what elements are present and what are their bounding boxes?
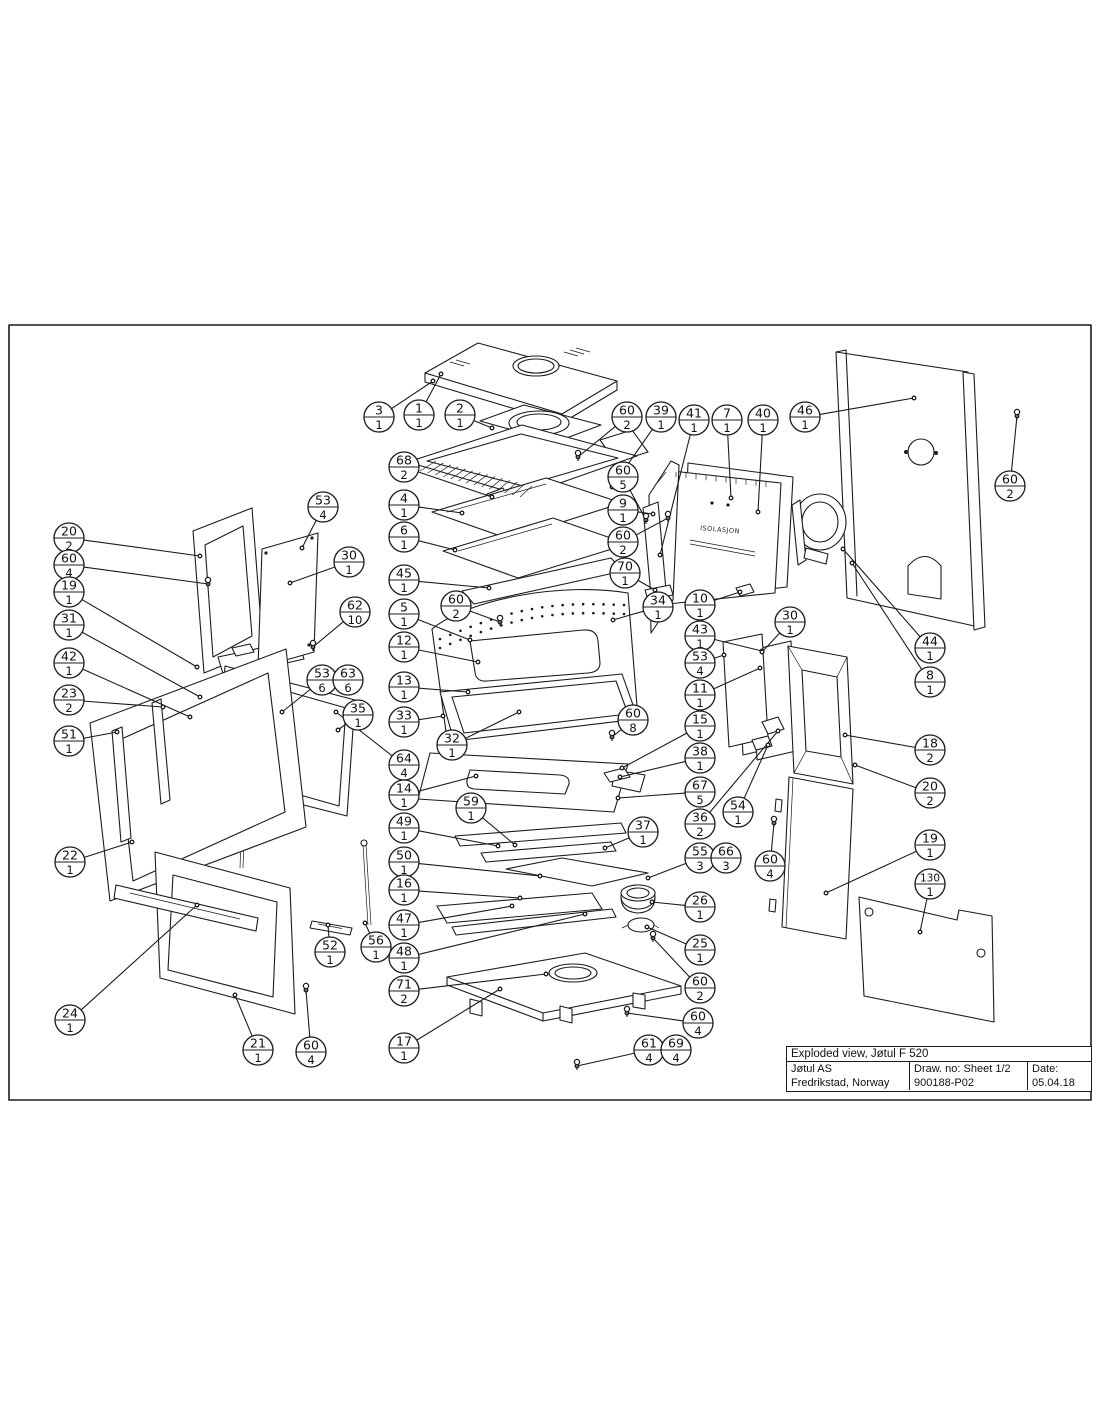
callout-quantity: 1 <box>657 418 664 432</box>
callout-quantity: 4 <box>307 1053 314 1067</box>
callout-quantity: 1 <box>926 683 933 697</box>
callout-part-number: 40 <box>755 406 771 421</box>
callout-quantity: 1 <box>65 664 72 678</box>
callout-part-number: 59 <box>463 794 479 809</box>
callout-part-number: 25 <box>692 936 708 951</box>
callout-quantity: 1 <box>65 593 72 607</box>
callout-part-number: 16 <box>396 876 412 891</box>
callout-quantity: 2 <box>400 992 407 1006</box>
callout-balloon-53: 534 <box>300 492 338 550</box>
callout-quantity: 2 <box>696 989 703 1003</box>
callout-quantity: 1 <box>926 649 933 663</box>
callout-quantity: 1 <box>400 1049 407 1063</box>
callout-quantity: 1 <box>448 746 455 760</box>
callout-part-number: 33 <box>396 708 412 723</box>
callout-part-number: 42 <box>61 649 77 664</box>
callout-quantity: 1 <box>65 626 72 640</box>
callout-part-number: 45 <box>396 566 412 581</box>
callout-part-number: 6 <box>400 523 408 538</box>
callout-part-number: 67 <box>692 778 708 793</box>
company-name: Jøtul AS <box>787 1062 909 1076</box>
callout-part-number: 3 <box>375 403 383 418</box>
callout-quantity: 1 <box>400 959 407 973</box>
callout-balloon-18: 182 <box>843 733 945 765</box>
callout-part-number: 50 <box>396 848 412 863</box>
callout-quantity: 2 <box>696 825 703 839</box>
callout-part-number: 5 <box>400 600 408 615</box>
callout-quantity: 1 <box>375 418 382 432</box>
callout-quantity: 1 <box>696 759 703 773</box>
callout-part-number: 41 <box>686 406 702 421</box>
callout-part-number: 60 <box>615 528 631 543</box>
callout-quantity: 1 <box>66 863 73 877</box>
drawing-number: 900188-P02 <box>909 1076 1027 1090</box>
callout-quantity: 1 <box>372 948 379 962</box>
callout-part-number: 60 <box>448 592 464 607</box>
callout-quantity: 5 <box>696 793 703 807</box>
callout-quantity: 1 <box>690 421 697 435</box>
callout-quantity: 4 <box>400 766 407 780</box>
callout-part-number: 68 <box>396 453 412 468</box>
callout-part-number: 71 <box>396 977 412 992</box>
callout-part-number: 2 <box>456 401 464 416</box>
callout-part-number: 30 <box>341 548 357 563</box>
callout-part-number: 51 <box>61 727 77 742</box>
callout-part-number: 24 <box>62 1006 78 1021</box>
title-block: Exploded view, Jøtul F 520 Jøtul AS Draw… <box>786 1046 1092 1092</box>
callout-quantity: 8 <box>629 721 636 735</box>
callout-quantity: 1 <box>801 418 808 432</box>
callout-quantity: 1 <box>619 511 626 525</box>
callout-balloon-25: 251 <box>645 925 715 965</box>
callout-part-number: 60 <box>615 463 631 478</box>
callout-part-number: 48 <box>396 944 412 959</box>
callout-quantity: 1 <box>621 574 628 588</box>
callout-quantity: 1 <box>400 538 407 552</box>
callout-quantity: 2 <box>65 701 72 715</box>
callout-quantity: 2 <box>623 418 630 432</box>
callout-quantity: 4 <box>672 1051 679 1065</box>
callout-part-number: 10 <box>692 591 708 606</box>
callout-quantity: 1 <box>345 563 352 577</box>
callout-balloon-38: 381 <box>618 743 715 779</box>
callout-quantity: 4 <box>694 1024 701 1038</box>
callout-part-number: 20 <box>61 524 77 539</box>
callout-quantity: 2 <box>926 794 933 808</box>
callout-part-number: 38 <box>692 744 708 759</box>
callout-part-number: 39 <box>653 403 669 418</box>
callout-quantity: 1 <box>354 716 361 730</box>
callout-part-number: 60 <box>690 1009 706 1024</box>
callout-quantity: 1 <box>400 926 407 940</box>
callout-balloon-60: 604 <box>296 983 326 1067</box>
callout-quantity: 1 <box>759 421 766 435</box>
callout-balloon-53: 534 <box>685 648 726 678</box>
callout-quantity: 1 <box>696 951 703 965</box>
callout-part-number: 19 <box>922 831 938 846</box>
company-address: Fredrikstad, Norway <box>787 1076 909 1090</box>
callout-quantity: 1 <box>723 421 730 435</box>
callout-part-number: 60 <box>762 852 778 867</box>
callout-part-number: 14 <box>396 781 412 796</box>
callout-quantity: 1 <box>467 809 474 823</box>
callout-balloon-2: 21 <box>445 400 494 430</box>
callout-part-number: 53 <box>314 666 330 681</box>
callout-part-number: 15 <box>692 712 708 727</box>
callout-quantity: 1 <box>400 648 407 662</box>
callout-part-number: 60 <box>1002 472 1018 487</box>
callout-part-number: 60 <box>692 974 708 989</box>
callout-quantity: 1 <box>400 891 407 905</box>
callout-part-number: 9 <box>619 496 627 511</box>
callout-part-number: 54 <box>730 798 746 813</box>
callout-balloon-54: 541 <box>723 743 770 827</box>
callout-part-number: 70 <box>617 559 633 574</box>
left-glass-panel-shape <box>258 533 318 668</box>
callout-balloon-69: 694 <box>661 1035 691 1065</box>
callout-part-number: 43 <box>692 622 708 637</box>
callout-part-number: 19 <box>61 578 77 593</box>
callout-quantity: 1 <box>400 723 407 737</box>
callout-quantity: 1 <box>734 813 741 827</box>
callout-quantity: 1 <box>400 615 407 629</box>
callout-quantity: 2 <box>1006 487 1013 501</box>
callout-part-number: 52 <box>322 938 338 953</box>
base-plate-shape <box>447 953 681 1023</box>
callout-part-number: 130 <box>920 873 940 885</box>
callout-quantity: 1 <box>786 623 793 637</box>
callout-part-number: 31 <box>61 611 77 626</box>
callout-quantity: 1 <box>456 416 463 430</box>
callout-balloon-60: 604 <box>755 816 785 881</box>
callout-part-number: 23 <box>61 686 77 701</box>
callout-part-number: 60 <box>61 551 77 566</box>
callout-quantity: 1 <box>400 688 407 702</box>
side-frame-shape <box>788 646 853 784</box>
callout-balloon-60: 604 <box>624 1006 713 1038</box>
callout-balloon-26: 261 <box>650 892 715 922</box>
callout-part-number: 44 <box>922 634 938 649</box>
callout-part-number: 61 <box>641 1036 657 1051</box>
callout-part-number: 63 <box>340 666 356 681</box>
bottom-shield-shape <box>859 897 994 1022</box>
callout-part-number: 11 <box>692 681 708 696</box>
callout-quantity: 3 <box>696 859 703 873</box>
callout-part-number: 49 <box>396 814 412 829</box>
callout-quantity: 1 <box>254 1051 261 1065</box>
drawing-date: 05.04.18 <box>1027 1076 1091 1090</box>
callout-quantity: 1 <box>696 606 703 620</box>
callout-part-number: 36 <box>692 810 708 825</box>
flue-outlet-shapes <box>621 885 659 932</box>
callout-quantity: 1 <box>696 696 703 710</box>
drawing-title: Exploded view, Jøtul F 520 <box>787 1047 1091 1062</box>
callout-part-number: 20 <box>922 779 938 794</box>
callout-part-number: 13 <box>396 673 412 688</box>
callout-quantity: 1 <box>639 833 646 847</box>
callout-quantity: 2 <box>619 543 626 557</box>
drawing-page: ISOLASJON <box>0 0 1100 1422</box>
callout-quantity: 1 <box>654 608 661 622</box>
callout-quantity: 2 <box>400 468 407 482</box>
callout-part-number: 55 <box>692 844 708 859</box>
callout-part-number: 8 <box>926 668 934 683</box>
callout-quantity: 1 <box>696 727 703 741</box>
callout-balloon-60: 602 <box>995 409 1025 501</box>
callout-part-number: 66 <box>718 844 734 859</box>
callout-part-number: 4 <box>400 491 408 506</box>
callout-part-number: 22 <box>62 848 78 863</box>
callout-part-number: 69 <box>668 1036 684 1051</box>
callout-part-number: 60 <box>619 403 635 418</box>
callout-part-number: 53 <box>692 649 708 664</box>
callout-part-number: 26 <box>692 893 708 908</box>
callout-quantity: 3 <box>722 859 729 873</box>
callout-quantity: 1 <box>415 416 422 430</box>
callout-balloon-66: 663 <box>711 843 741 873</box>
callout-quantity: 2 <box>926 751 933 765</box>
exploded-diagram: ISOLASJON <box>0 0 1100 1422</box>
callout-part-number: 32 <box>444 731 460 746</box>
callout-quantity: 5 <box>619 478 626 492</box>
callout-quantity: 1 <box>400 829 407 843</box>
callout-part-number: 35 <box>350 701 366 716</box>
callout-part-number: 60 <box>625 706 641 721</box>
callout-part-number: 30 <box>782 608 798 623</box>
callout-quantity: 4 <box>319 508 326 522</box>
callout-quantity: 10 <box>348 613 363 627</box>
callout-part-number: 56 <box>368 933 384 948</box>
callout-part-number: 7 <box>723 406 731 421</box>
callout-quantity: 1 <box>326 953 333 967</box>
callout-quantity: 4 <box>645 1051 652 1065</box>
callout-quantity: 1 <box>926 846 933 860</box>
callout-part-number: 53 <box>315 493 331 508</box>
callout-balloon-55: 553 <box>646 843 715 880</box>
callout-quantity: 4 <box>696 664 703 678</box>
callout-quantity: 1 <box>400 796 407 810</box>
draw-no-label: Draw. no: Sheet 1/2 <box>909 1062 1027 1076</box>
callout-quantity: 1 <box>400 506 407 520</box>
callout-balloon-63: 636 <box>333 665 363 695</box>
callout-part-number: 18 <box>922 736 938 751</box>
callout-balloon-1: 11 <box>404 372 443 430</box>
callout-quantity: 4 <box>766 867 773 881</box>
callout-part-number: 34 <box>650 593 666 608</box>
callout-balloon-6: 61 <box>389 522 457 552</box>
callout-balloon-61: 614 <box>574 1035 664 1070</box>
callout-quantity: 1 <box>66 1021 73 1035</box>
callout-quantity: 1 <box>926 885 933 899</box>
callout-balloon-33: 331 <box>389 707 445 737</box>
callout-quantity: 6 <box>344 681 351 695</box>
callout-part-number: 21 <box>250 1036 266 1051</box>
callout-quantity: 2 <box>452 607 459 621</box>
callout-quantity: 1 <box>696 908 703 922</box>
callout-part-number: 17 <box>396 1034 412 1049</box>
callout-part-number: 60 <box>303 1038 319 1053</box>
right-glass-panels-shape <box>723 634 796 760</box>
callout-balloon-56: 561 <box>361 921 391 962</box>
callout-part-number: 1 <box>415 401 423 416</box>
callout-part-number: 47 <box>396 911 412 926</box>
callout-balloon-20: 202 <box>853 763 945 808</box>
callout-part-number: 37 <box>635 818 651 833</box>
callout-quantity: 1 <box>400 581 407 595</box>
callout-part-number: 12 <box>396 633 412 648</box>
callout-part-number: 64 <box>396 751 412 766</box>
rear-heat-shield-shape <box>836 350 985 630</box>
callout-part-number: 62 <box>347 598 363 613</box>
date-label: Date: <box>1027 1062 1091 1076</box>
callout-quantity: 1 <box>65 742 72 756</box>
callout-quantity: 6 <box>318 681 325 695</box>
handle-parts-shapes <box>310 840 371 935</box>
callout-balloon-62: 6210 <box>310 597 370 651</box>
callout-part-number: 46 <box>797 403 813 418</box>
